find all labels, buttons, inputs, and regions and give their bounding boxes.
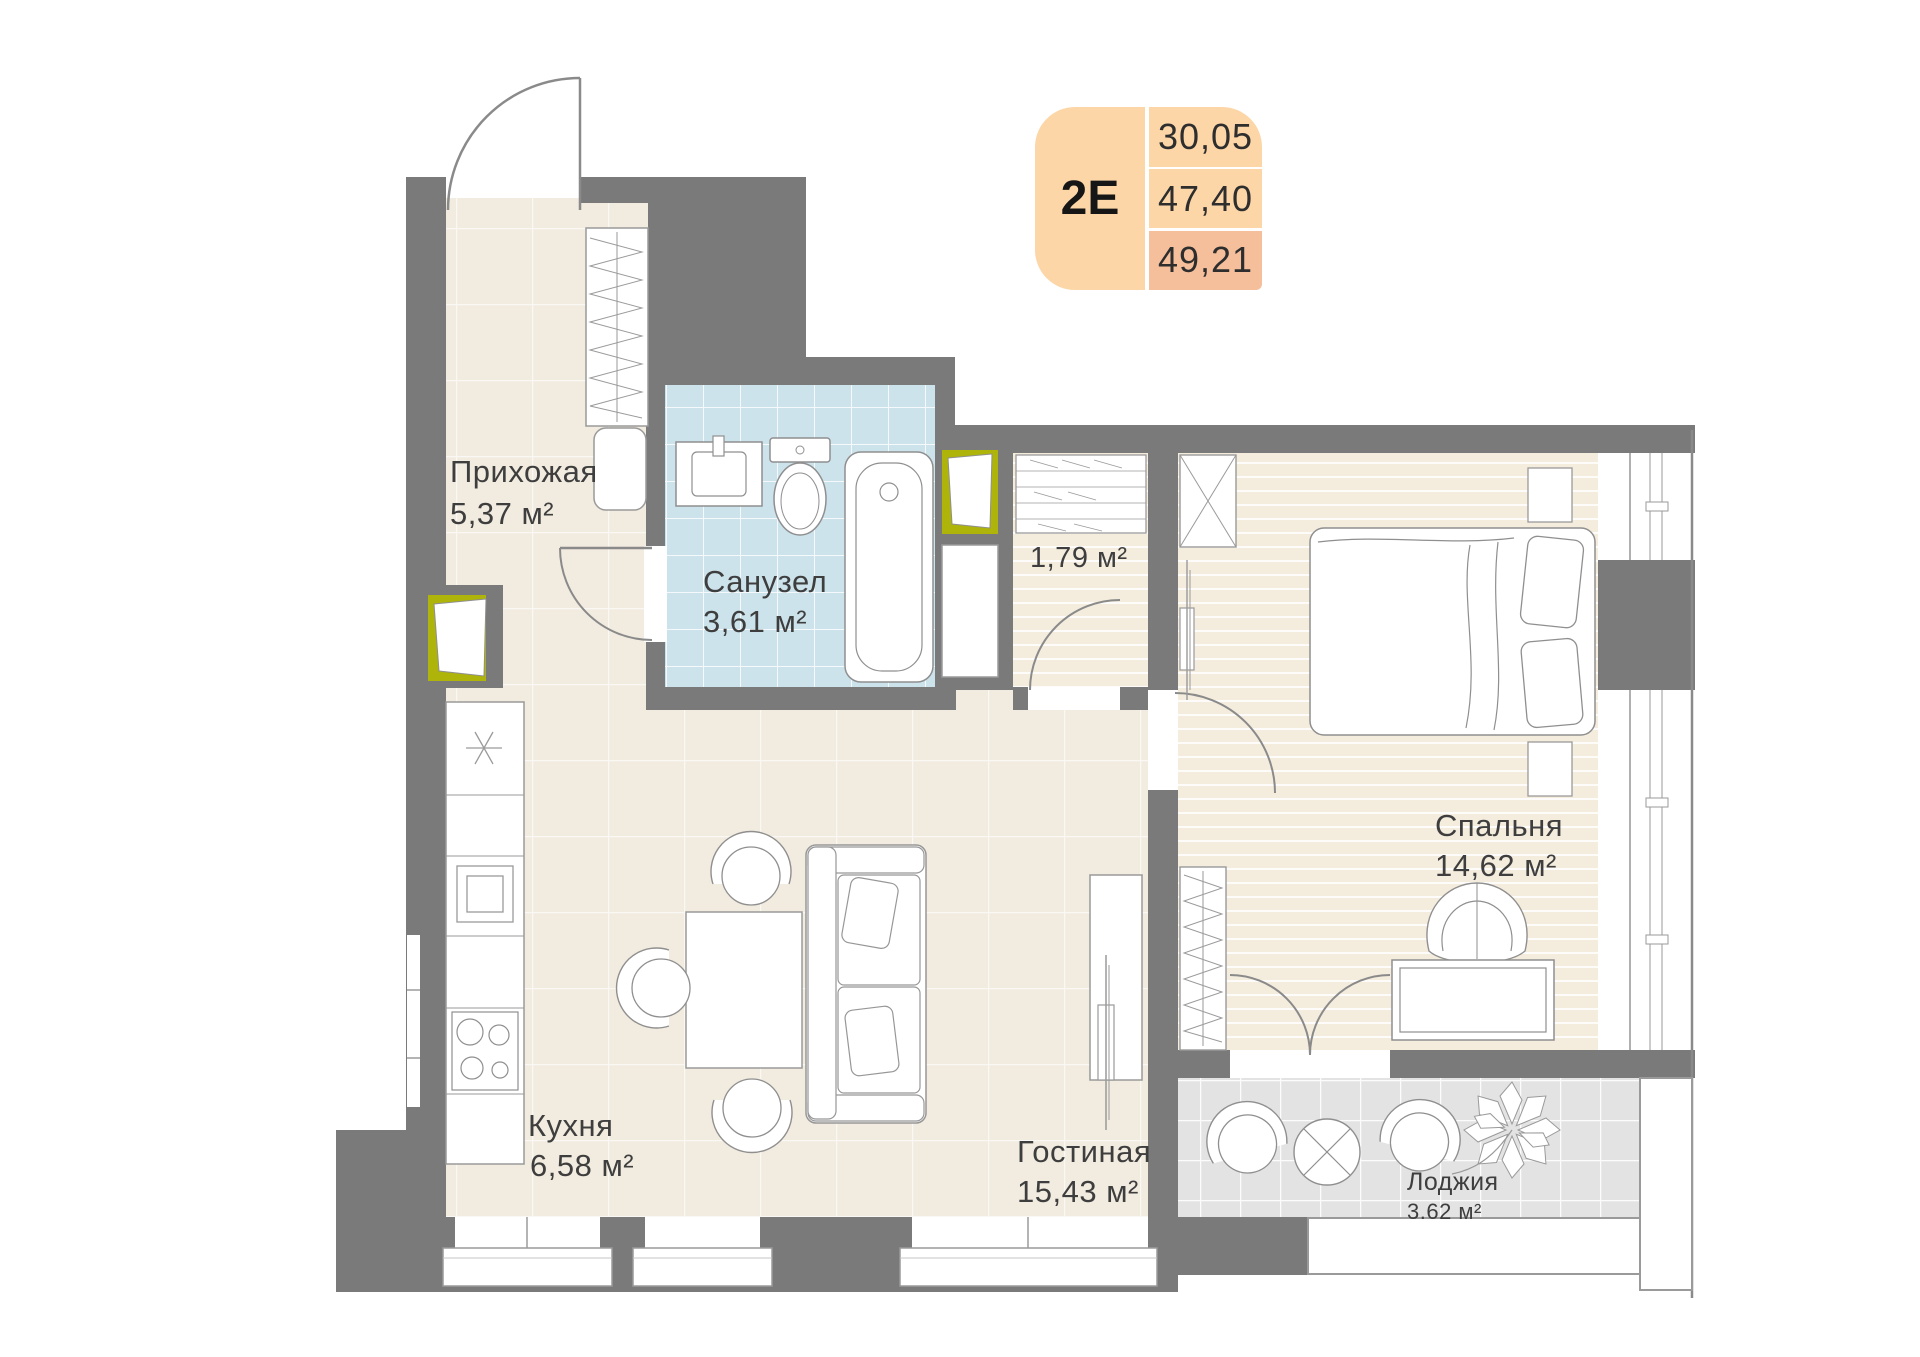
label-living-area: 15,43 м² bbox=[1017, 1176, 1139, 1207]
label-kitchen-name: Кухня bbox=[528, 1110, 613, 1141]
window-bottom-b bbox=[633, 1217, 772, 1286]
label-kitchen-area: 6,58 м² bbox=[530, 1150, 634, 1181]
unit-areas-column: 30,05 47,40 49,21 bbox=[1149, 107, 1262, 290]
shaft-window-left bbox=[418, 585, 503, 688]
unit-living-area: 30,05 bbox=[1149, 107, 1262, 167]
bathroom-bathtub bbox=[845, 452, 933, 682]
kitchen-oven bbox=[457, 866, 513, 922]
entrance-door bbox=[448, 78, 580, 210]
bedroom-wardrobe bbox=[1180, 867, 1226, 1050]
kitchen-stove bbox=[452, 1012, 518, 1090]
shaft-window-middle bbox=[942, 450, 998, 677]
label-hallway-name: Прихожая bbox=[450, 456, 598, 487]
window-bedroom-lower bbox=[1598, 690, 1692, 1050]
floor-plan-drawing bbox=[0, 0, 1920, 1357]
label-storage-area: 1,79 м² bbox=[1030, 544, 1128, 573]
hallway-cabinet bbox=[594, 428, 646, 510]
loggia-table bbox=[1294, 1119, 1360, 1185]
window-bedroom-upper bbox=[1598, 453, 1692, 560]
floorplan-page: Прихожая 5,37 м² Санузел 3,61 м² 1,79 м²… bbox=[0, 0, 1920, 1357]
bathroom-vanity bbox=[676, 436, 762, 506]
storage-shelving bbox=[1016, 455, 1146, 533]
kitchen-counter bbox=[446, 702, 524, 1164]
hallway-wardrobe bbox=[586, 228, 648, 426]
unit-type-badge: 2E bbox=[1035, 107, 1145, 290]
window-bottom-c bbox=[900, 1217, 1157, 1286]
label-loggia-area: 3.62 м² bbox=[1407, 1201, 1482, 1223]
loggia-railing bbox=[1308, 1218, 1640, 1274]
unit-total-area: 49,21 bbox=[1149, 231, 1262, 291]
label-bathroom-area: 3,61 м² bbox=[703, 606, 807, 637]
label-bedroom-name: Спальня bbox=[1435, 810, 1563, 841]
nightstand-top bbox=[1528, 468, 1572, 522]
nightstand-bottom bbox=[1528, 742, 1572, 796]
unit-info-card: 2E 30,05 47,40 49,21 bbox=[1035, 107, 1262, 290]
window-left-slit bbox=[407, 935, 420, 1107]
label-bedroom-area: 14,62 м² bbox=[1435, 850, 1557, 881]
label-hallway-area: 5,37 м² bbox=[450, 498, 554, 529]
loggia-glazing-right bbox=[1640, 1078, 1692, 1290]
unit-area-no-balcony: 47,40 bbox=[1149, 169, 1262, 229]
label-bathroom-name: Санузел bbox=[703, 566, 827, 597]
window-bottom-a bbox=[443, 1217, 612, 1286]
label-loggia-name: Лоджия bbox=[1407, 1170, 1499, 1195]
bed bbox=[1310, 528, 1595, 735]
bedroom-desk bbox=[1392, 960, 1554, 1040]
bathroom-toilet bbox=[770, 438, 830, 535]
dining-table bbox=[686, 912, 802, 1068]
sofa bbox=[806, 845, 926, 1123]
label-living-name: Гостиная bbox=[1017, 1136, 1151, 1167]
bedroom-closet-x bbox=[1180, 455, 1236, 547]
